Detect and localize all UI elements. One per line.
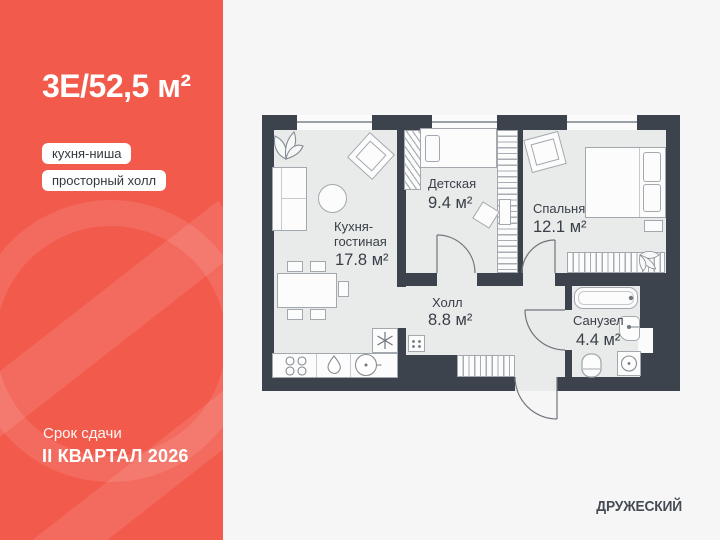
room-area-bedroom: 12.1 м²	[533, 218, 587, 237]
bed-divider	[639, 148, 640, 217]
bedroom-radiator	[567, 252, 665, 273]
wall	[477, 273, 523, 286]
window	[297, 115, 372, 130]
developer-logo: ДРУЖЕСКИЙ	[570, 498, 682, 515]
completion-label: Срок сдачи	[43, 425, 122, 442]
door-arc-bathroom	[525, 310, 565, 350]
wall	[565, 273, 572, 310]
bedside-bench	[644, 220, 663, 232]
wall	[518, 130, 523, 273]
room-area-bathroom: 4.4 м²	[576, 331, 620, 350]
coffee-table	[318, 184, 347, 213]
dining-chair	[287, 261, 303, 272]
wall	[555, 273, 680, 286]
pillow	[643, 184, 661, 212]
sofa	[272, 167, 307, 231]
dining-chair	[310, 261, 326, 272]
wall	[397, 273, 437, 286]
counter-divider	[350, 354, 351, 377]
counter-divider	[316, 354, 317, 377]
info-panel: 3Е/52,5 м² кухня-ниша просторный холл Ср…	[0, 0, 223, 540]
window	[567, 115, 637, 130]
pillow	[643, 152, 661, 182]
toilet-icon	[582, 354, 601, 377]
feature-tag-spacious-hall: просторный холл	[42, 170, 166, 191]
room-label-kitchen-living: Кухня-гостиная	[334, 219, 396, 249]
floor-plan: Кухня-гостиная 17.8 м² Детская 9.4 м² Сп…	[262, 115, 680, 391]
door-arc-entrance	[515, 377, 557, 419]
room-area-kitchen-living: 17.8 м²	[335, 251, 389, 270]
dining-table	[277, 273, 337, 308]
pillow	[425, 135, 440, 162]
kitchen-counter	[272, 353, 398, 378]
room-label-hall: Холл	[432, 295, 463, 310]
door-arc-bedroom	[522, 240, 555, 273]
room-label-kids-room: Детская	[428, 176, 476, 191]
room-area-kids-room: 9.4 м²	[428, 194, 472, 213]
room-area-hall: 8.8 м²	[428, 311, 472, 330]
listing-card: 3Е/52,5 м² кухня-ниша просторный холл Ср…	[0, 0, 720, 540]
wall	[557, 377, 680, 391]
bathtub-inner	[578, 291, 634, 305]
wall	[565, 350, 572, 377]
wardrobe-kids	[404, 130, 421, 190]
plant-icon	[274, 132, 303, 159]
apartment-title: 3Е/52,5 м²	[42, 68, 191, 105]
closet-door	[499, 199, 511, 225]
wall	[497, 115, 567, 130]
room-label-bedroom: Спальня	[533, 201, 585, 216]
electrical-panel	[408, 335, 425, 352]
dining-chair	[287, 309, 303, 320]
hall-wardrobe	[457, 355, 515, 377]
wall	[398, 355, 460, 377]
door-arc-kids-room	[437, 235, 475, 273]
stool	[472, 201, 500, 229]
dining-chair	[338, 281, 349, 297]
wall-niche	[638, 328, 653, 353]
sofa-cushion-line	[282, 198, 306, 199]
completion-value: II КВАРТАЛ 2026	[42, 446, 189, 467]
wall	[262, 377, 515, 391]
washing-machine	[617, 351, 641, 376]
dining-chair	[310, 309, 326, 320]
room-label-bathroom: Санузел	[573, 313, 624, 328]
wall	[262, 115, 274, 391]
vent-shaft-box	[372, 328, 398, 353]
sofa-backrest	[281, 168, 282, 230]
feature-tag-kitchen-niche: кухня-ниша	[42, 143, 131, 164]
wall	[666, 115, 680, 285]
